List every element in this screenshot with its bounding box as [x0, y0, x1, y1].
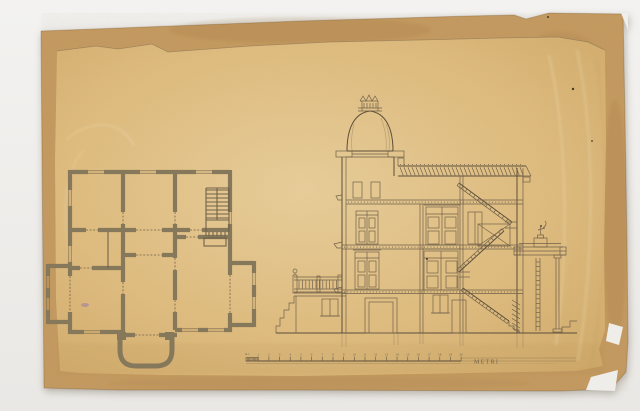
- scale-tick-label: 13: [385, 352, 389, 356]
- metri-label: METRI: [474, 360, 499, 366]
- purple-smudge: [81, 303, 89, 307]
- archival-drawing-photo: 1234567891011121314151617181920 m.1 METR…: [0, 0, 640, 411]
- scale-tick-label: 11: [363, 352, 366, 356]
- scale-tick-label: 10: [353, 352, 357, 356]
- scale-tick-label: 16: [417, 352, 421, 356]
- scale-tick-label: 12: [374, 352, 378, 356]
- scale-tick-label: 17: [427, 352, 431, 356]
- scale-tick-label: 20: [460, 352, 464, 356]
- photo-background: 1234567891011121314151617181920 m.1 METR…: [0, 0, 640, 411]
- scale-tick-label: 14: [395, 352, 399, 356]
- scale-tick-label: 15: [406, 352, 410, 356]
- scale-tick-label: 19: [449, 352, 453, 356]
- scale-tick-label: 18: [438, 352, 442, 356]
- scale-left-label: m.1: [245, 353, 250, 356]
